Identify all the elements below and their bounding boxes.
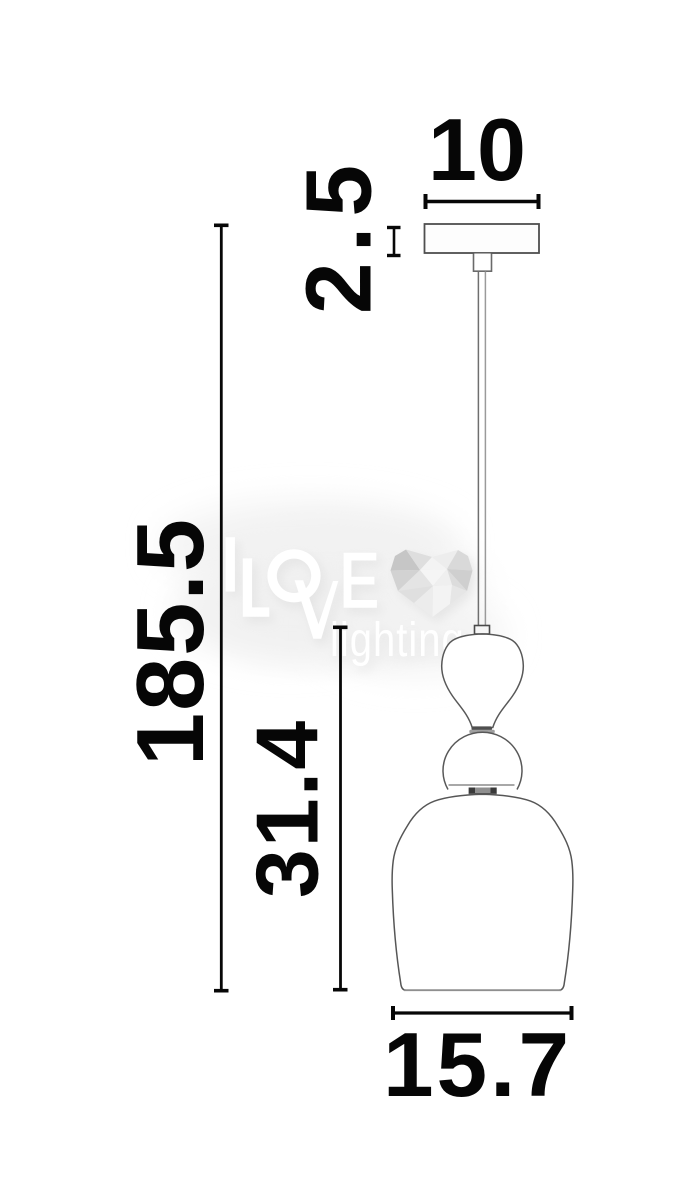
svg-text:10: 10 xyxy=(428,100,526,199)
svg-text:15.7: 15.7 xyxy=(383,1015,572,1116)
svg-text:185.5: 185.5 xyxy=(118,517,224,766)
svg-text:31.4: 31.4 xyxy=(238,719,337,898)
svg-text:2.5: 2.5 xyxy=(287,155,391,314)
